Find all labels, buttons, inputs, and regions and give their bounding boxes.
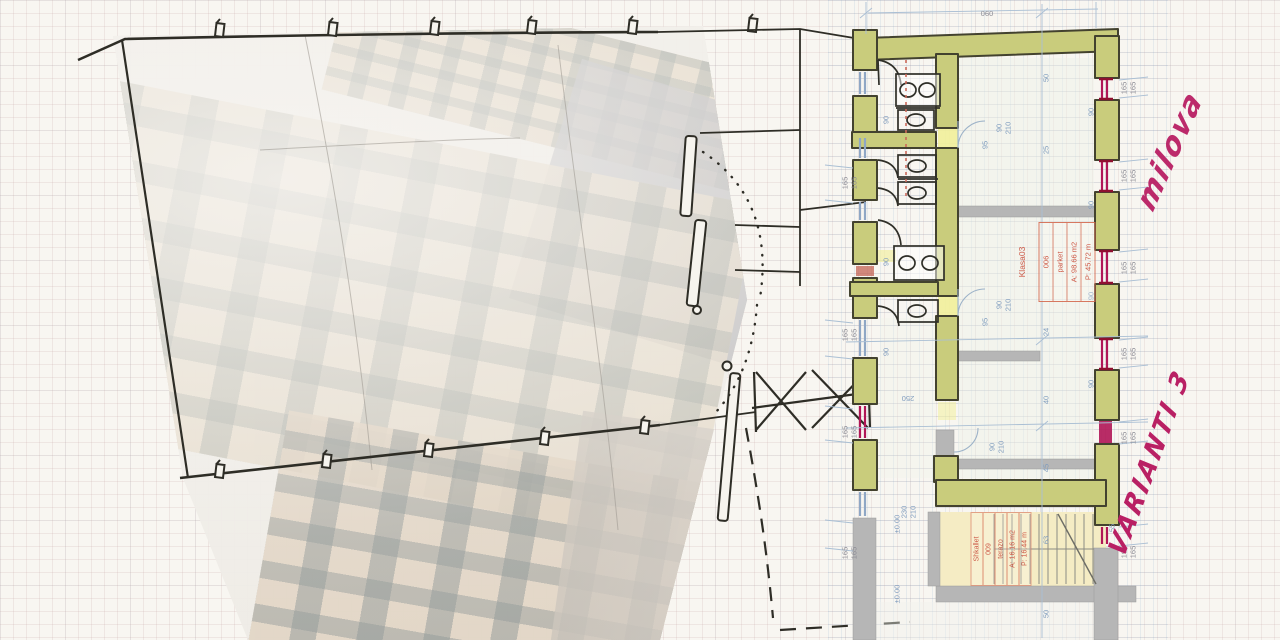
dimension-label: ±0.00: [893, 515, 901, 534]
dimension-label: 090: [981, 9, 994, 17]
dimension-label: 165: [1120, 170, 1128, 183]
exterior-wall-bottom: [936, 480, 1106, 506]
dimension-label: 50: [1042, 74, 1050, 82]
room-area: A: 98.66 m2: [1068, 223, 1082, 301]
dimension-label: 165: [841, 177, 849, 190]
room-name: Shkallet: [972, 513, 984, 585]
room-floor: terazo: [996, 513, 1008, 585]
gate-leaf-1: [680, 136, 706, 314]
room-perimeter: P: 45.72 m: [1082, 223, 1095, 301]
dimension-label: 90: [988, 443, 996, 451]
dimension-label: 165: [1129, 262, 1137, 275]
dimension-label: 50: [1042, 610, 1050, 618]
room-floor: parket: [1054, 223, 1068, 301]
dimension-label: 165: [850, 547, 858, 560]
dimension-label: 40: [1042, 396, 1050, 404]
dimension-label: ±0.00: [893, 585, 901, 604]
gate-leaf-2: [718, 362, 741, 522]
dimension-label: 210: [997, 441, 1005, 454]
dimension-label: 165: [1129, 432, 1137, 445]
pencil-stray-lines: [260, 35, 618, 530]
dimension-label: 165: [850, 426, 858, 439]
dimension-label: 165: [1129, 170, 1137, 183]
sketch-overlay-svg: [0, 0, 1280, 640]
dimension-label: 90: [882, 116, 890, 124]
scanned-sketch-page: 1651651651651651651651651651651901651651…: [0, 0, 1280, 640]
dimension-label: 90: [1087, 380, 1095, 388]
dimension-label: 165: [1129, 348, 1137, 361]
room-stamp-006: 006 parket A: 98.66 m2 P: 45.72 m: [1039, 222, 1096, 302]
dimension-label: 90: [1087, 108, 1095, 116]
dimension-label: 90: [882, 348, 890, 356]
exterior-wall-top: [864, 29, 1118, 60]
dimension-label: 165: [850, 177, 858, 190]
dimension-label: 90: [995, 124, 1003, 132]
dimension-label: 63: [1042, 536, 1050, 544]
room-stamp-009: Shkallet 009 terazo A: 16.16 m2 P: 16.44…: [971, 512, 1032, 586]
dimension-label: 90: [1087, 201, 1095, 209]
site-boundary-fence: [78, 14, 758, 478]
room-number: 009: [984, 513, 996, 585]
dimension-label: 24: [1042, 328, 1050, 336]
room-label-klasa: Klasa03: [1017, 247, 1027, 278]
dimension-label: 250: [902, 394, 915, 402]
dimension-label: 95: [981, 141, 989, 149]
dimension-label: 25: [1042, 146, 1050, 154]
dimension-label: 165: [841, 547, 849, 560]
dimension-label: 165: [841, 329, 849, 342]
dimension-label: 210: [1004, 122, 1012, 135]
dimension-label: 165: [1120, 262, 1128, 275]
dimension-label: 165: [1120, 348, 1128, 361]
dimension-label: 165: [850, 329, 858, 342]
dimension-label: 165: [841, 426, 849, 439]
dimension-label: 95: [981, 318, 989, 326]
dimension-label: 165: [1129, 82, 1137, 95]
dimension-label: 45: [1042, 464, 1050, 472]
dimension-label: 165: [1120, 82, 1128, 95]
dimension-label: 90: [882, 258, 890, 266]
room-perimeter: P: 16.44 m: [1020, 513, 1031, 585]
room-area: A: 16.16 m2: [1008, 513, 1020, 585]
dimension-label: 90: [995, 301, 1003, 309]
dimension-label: 165: [1120, 432, 1128, 445]
fence-connection-lines: [658, 29, 866, 425]
dimension-label: 230: [900, 506, 908, 519]
room-number: 006: [1040, 223, 1054, 301]
dimension-label: 210: [1004, 299, 1012, 312]
dimension-label: 210: [909, 506, 917, 519]
